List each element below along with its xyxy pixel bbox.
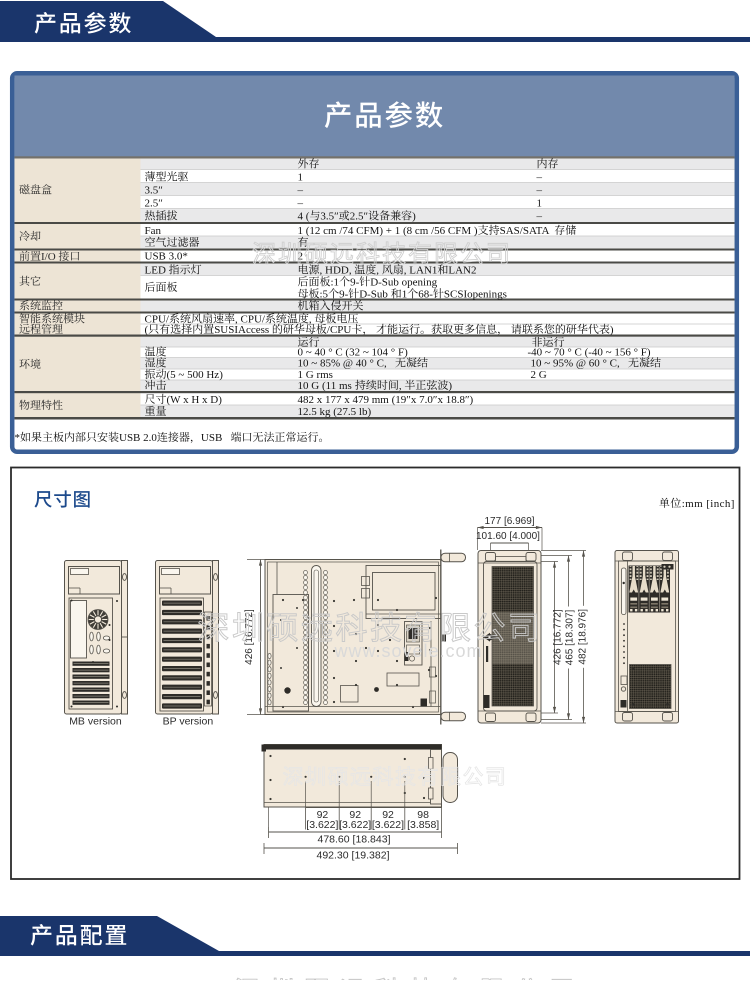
svg-text:1 (12 cm /74 CFM) + 1 (8 cm /5: 1 (12 cm /74 CFM) + 1 (8 cm /56 CFM ) xyxy=(298,225,478,237)
svg-text:1: 1 xyxy=(402,289,408,301)
svg-text:10 G (11 ms: 10 G (11 ms xyxy=(298,380,352,392)
svg-text:(: ( xyxy=(145,324,149,336)
svg-text:482 [18.976]: 482 [18.976] xyxy=(578,609,589,665)
svg-text:*: * xyxy=(15,432,21,444)
svg-text:10 ~ 95% @ 60 ° C,: 10 ~ 95% @ 60 ° C, xyxy=(531,358,620,370)
svg-text:LED: LED xyxy=(145,265,166,277)
svg-text::5: :5 xyxy=(320,289,329,301)
svg-text:2 G: 2 G xyxy=(531,369,547,381)
svg-text:D-Sub: D-Sub xyxy=(359,289,388,301)
svg-text:, LAN1: , LAN1 xyxy=(404,265,438,277)
svg-text:478.60 [18.843]: 478.60 [18.843] xyxy=(318,834,391,846)
svg-text:): ) xyxy=(610,324,614,336)
svg-text:): ) xyxy=(448,380,452,392)
svg-text:68-: 68- xyxy=(418,289,433,301)
svg-text:LAN2: LAN2 xyxy=(448,265,476,277)
svg-text:177 [6.969]: 177 [6.969] xyxy=(485,516,535,527)
svg-text:3.5″: 3.5″ xyxy=(320,211,338,223)
svg-text:–: – xyxy=(536,211,543,223)
svg-text:BP version: BP version xyxy=(163,716,214,728)
svg-text:, HDD,: , HDD, xyxy=(320,265,352,277)
svg-text:,: , xyxy=(376,265,379,277)
svg-text:426 [16.772]: 426 [16.772] xyxy=(553,609,564,665)
svg-text:SAS/SATA: SAS/SATA xyxy=(500,225,550,237)
svg-text::mm [inch]: :mm [inch] xyxy=(682,498,735,510)
svg-text:www.sovele.com: www.sovele.com xyxy=(334,641,483,661)
svg-text:[3.622]: [3.622] xyxy=(339,819,371,831)
svg-text:12.5 kg (27.5 lb): 12.5 kg (27.5 lb) xyxy=(298,406,372,418)
svg-text:USB: USB xyxy=(201,432,222,444)
svg-text:–: – xyxy=(536,172,543,184)
svg-text:2.5″: 2.5″ xyxy=(350,211,368,223)
svg-text:USB 2.0: USB 2.0 xyxy=(119,432,157,444)
svg-text:4 (: 4 ( xyxy=(298,211,310,223)
svg-text:–: – xyxy=(536,185,543,197)
svg-text:9-: 9- xyxy=(339,289,349,301)
svg-text:[3.622]: [3.622] xyxy=(306,819,338,831)
svg-text:[3.858]: [3.858] xyxy=(407,819,439,831)
svg-text:[3.622]: [3.622] xyxy=(372,819,404,831)
svg-text:426 [16.772]: 426 [16.772] xyxy=(244,609,255,665)
svg-text:2.5″: 2.5″ xyxy=(145,198,163,210)
svg-text:D-Sub opening: D-Sub opening xyxy=(370,277,437,289)
svg-text:(5 ~ 500 Hz): (5 ~ 500 Hz) xyxy=(167,369,224,381)
svg-text:10 ~ 85% @ 40 ° C,: 10 ~ 85% @ 40 ° C, xyxy=(298,358,387,370)
svg-text:9-: 9- xyxy=(350,277,360,289)
svg-text:101.60 [4.000]: 101.60 [4.000] xyxy=(476,531,540,542)
svg-text:I/O: I/O xyxy=(41,251,56,263)
svg-text:SCSIopenings: SCSIopenings xyxy=(444,289,507,301)
svg-text:SUSIAccess: SUSIAccess xyxy=(214,324,269,336)
svg-text:/CPU: /CPU xyxy=(327,324,352,336)
svg-text:CPU/: CPU/ xyxy=(145,314,170,326)
svg-text:482 x 177 x 479 mm (19″x 7.0″: 482 x 177 x 479 mm (19″x 7.0″x 18.8″) xyxy=(298,394,474,406)
svg-text:USB 3.0*: USB 3.0* xyxy=(145,251,188,263)
svg-text:–: – xyxy=(297,185,304,197)
svg-text:492.30 [19.382]: 492.30 [19.382] xyxy=(317,850,390,862)
svg-text:1: 1 xyxy=(537,198,543,210)
svg-text:): ) xyxy=(412,211,416,223)
svg-text:,: , xyxy=(399,380,402,392)
svg-text:1: 1 xyxy=(298,172,304,184)
svg-text:(W x H x D): (W x H x D) xyxy=(167,394,223,406)
svg-text:,: , xyxy=(309,314,312,326)
svg-text::1: :1 xyxy=(331,277,340,289)
svg-text:3.5″: 3.5″ xyxy=(145,185,163,197)
svg-text:465 [18.307]: 465 [18.307] xyxy=(565,609,576,665)
svg-text:MB version: MB version xyxy=(69,716,122,728)
svg-text:–: – xyxy=(297,198,304,210)
svg-text:Fan: Fan xyxy=(145,225,162,237)
